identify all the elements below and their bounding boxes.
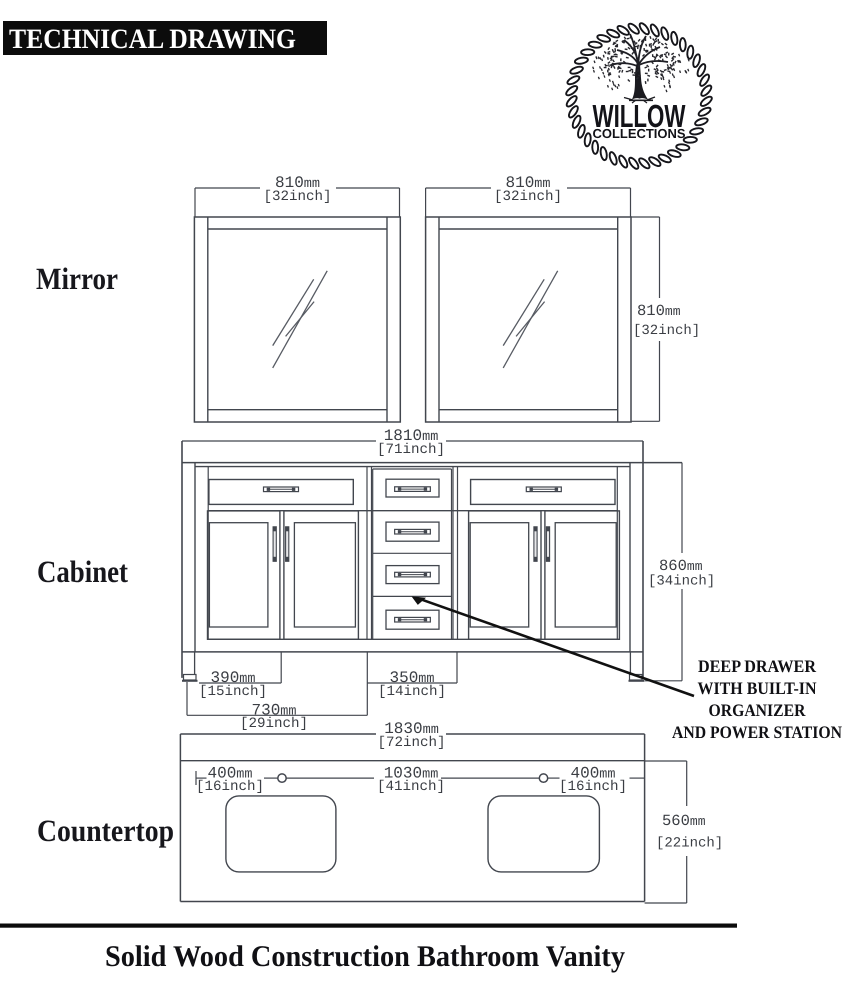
svg-text:[16inch]: [16inch] — [196, 779, 264, 795]
svg-text:DEEP DRAWER: DEEP DRAWER — [698, 656, 816, 676]
svg-text:810mm: 810mm — [637, 302, 681, 320]
svg-text:860mm: 860mm — [659, 557, 703, 575]
svg-text:[32inch]: [32inch] — [633, 323, 700, 339]
svg-text:[16inch]: [16inch] — [559, 779, 627, 795]
svg-text:TECHNICAL DRAWING: TECHNICAL DRAWING — [9, 24, 296, 55]
svg-text:[14inch]: [14inch] — [378, 684, 446, 700]
svg-text:COLLECTIONS: COLLECTIONS — [593, 126, 686, 141]
svg-text:WITH BUILT-IN: WITH BUILT-IN — [698, 678, 817, 698]
svg-text:[34inch]: [34inch] — [648, 574, 715, 590]
svg-text:AND POWER STATION: AND POWER STATION — [672, 722, 842, 742]
svg-text:[22inch]: [22inch] — [656, 836, 723, 852]
svg-text:ORGANIZER: ORGANIZER — [709, 700, 806, 720]
svg-text:Countertop: Countertop — [37, 813, 174, 848]
svg-text:Solid Wood Construction Bathro: Solid Wood Construction Bathroom Vanity — [105, 940, 625, 973]
svg-text:[72inch]: [72inch] — [377, 735, 445, 751]
svg-text:[29inch]: [29inch] — [240, 716, 308, 732]
svg-text:Mirror: Mirror — [36, 261, 118, 296]
svg-text:[32inch]: [32inch] — [263, 189, 331, 205]
svg-text:[41inch]: [41inch] — [377, 779, 445, 795]
svg-text:[71inch]: [71inch] — [377, 442, 445, 458]
svg-text:[32inch]: [32inch] — [494, 189, 562, 205]
svg-text:[15inch]: [15inch] — [199, 684, 267, 700]
svg-text:560mm: 560mm — [662, 812, 706, 830]
svg-text:Cabinet: Cabinet — [37, 554, 129, 589]
